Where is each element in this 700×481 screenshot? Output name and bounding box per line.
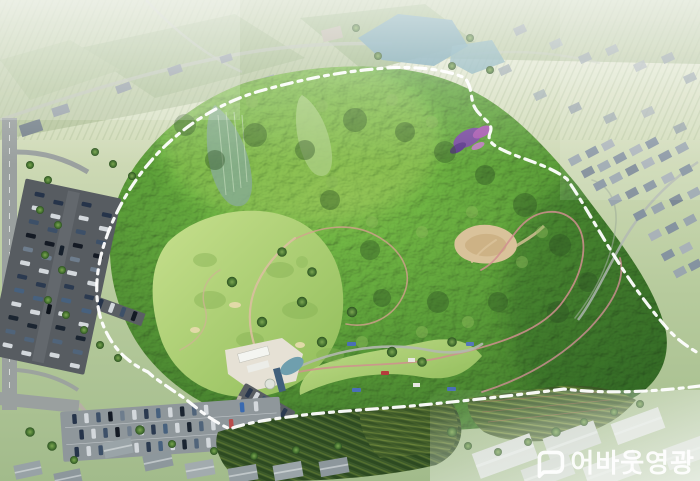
watermark-text: 어바웃영광 [570,451,695,477]
watermark: 어바웃영광 [536,448,695,479]
speech-bubble-logo-icon [536,448,565,479]
aerial-rendering: 어바웃영광 [0,0,700,481]
plaza-circle [265,379,275,389]
rendering-canvas [0,0,700,481]
